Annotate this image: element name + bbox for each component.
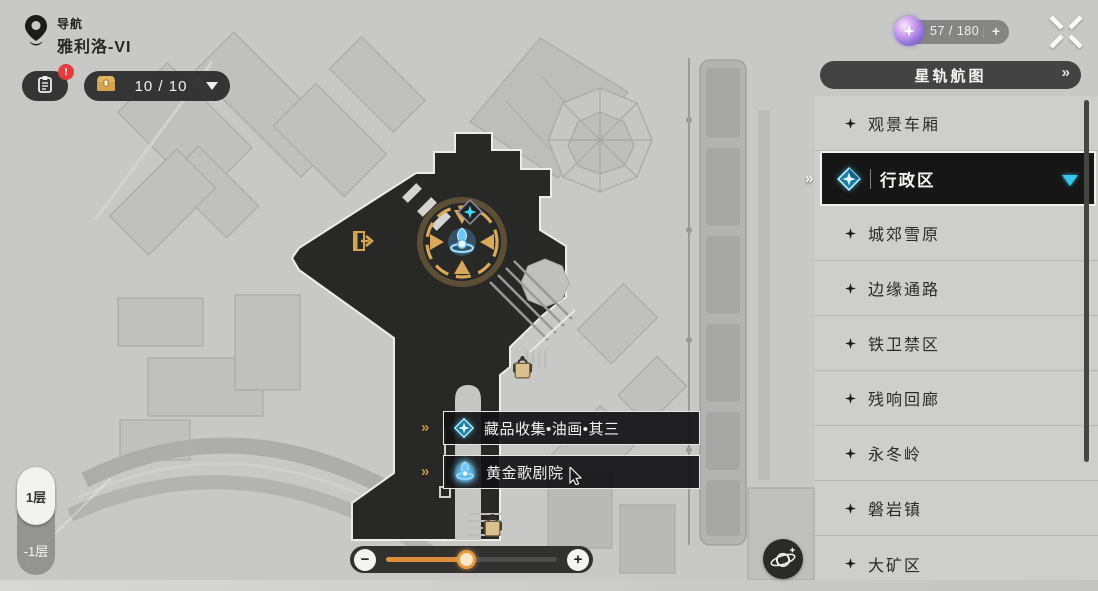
poi-pointer-icon: » <box>421 419 427 436</box>
panel-scrollbar[interactable] <box>1084 100 1089 462</box>
chest-icon <box>96 75 116 97</box>
nav-label: 导航 <box>57 15 131 32</box>
map-anchor-pin-icon[interactable] <box>457 199 483 230</box>
star-bullet-icon <box>845 118 856 129</box>
current-selection-arrow-icon: » <box>805 170 811 187</box>
space-anchor-diamond-icon <box>836 166 862 192</box>
close-button[interactable] <box>1048 14 1084 50</box>
chest-count-text: 10 / 10 <box>124 78 198 95</box>
zoom-track[interactable] <box>386 557 557 562</box>
floor-button-1[interactable]: 1层 <box>17 467 55 525</box>
star-rail-chart-button[interactable]: 星轨航图 » <box>820 61 1081 89</box>
poi-label-text: 黄金歌剧院 <box>486 462 564 483</box>
vendor-bag-icon[interactable] <box>512 355 533 385</box>
star-bullet-icon <box>845 338 856 349</box>
space-anchor-icon <box>453 460 477 484</box>
floor-button-minus1[interactable]: -1层 <box>17 525 55 575</box>
star-rail-chart-label: 星轨航图 <box>914 65 986 86</box>
star-bullet-icon <box>845 448 856 459</box>
chest-counter[interactable]: 10 / 10 <box>84 71 230 101</box>
star-bullet-icon <box>845 283 856 294</box>
game-map-screen: { "header": { "nav_label": "导航", "world_… <box>0 0 1098 580</box>
stamina-value: 57 / 180 <box>930 24 979 38</box>
star-bullet-icon <box>845 558 856 569</box>
sidebar-region-item-0[interactable]: 观景车厢 <box>815 96 1098 151</box>
star-bullet-icon <box>845 503 856 514</box>
mouse-cursor-icon <box>569 467 583 485</box>
collection-diamond-icon <box>453 417 475 439</box>
zoom-in-button[interactable]: + <box>567 549 589 571</box>
region-list-panel: 观景车厢 » 行政区 城郊雪原 边缘通路 铁卫禁区 <box>815 96 1098 580</box>
poi-label-collection[interactable]: 藏品收集•油画•其三 <box>443 411 700 445</box>
poi-pointer-icon: » <box>421 463 427 480</box>
sidebar-region-item-4[interactable]: 铁卫禁区 <box>815 316 1098 371</box>
star-bullet-icon <box>845 393 856 404</box>
universe-view-button[interactable] <box>763 539 803 579</box>
clipboard-icon <box>37 75 53 98</box>
sidebar-region-item-8[interactable]: 大矿区 <box>815 536 1098 591</box>
world-name: 雅利洛-VI <box>57 33 131 57</box>
divider <box>983 26 984 38</box>
star-bullet-icon <box>845 228 856 239</box>
divider <box>870 169 871 189</box>
exit-gate-icon[interactable] <box>352 230 376 257</box>
zoom-knob[interactable] <box>457 550 476 569</box>
vendor-bag-icon[interactable] <box>482 513 503 543</box>
chevron-down-icon[interactable] <box>206 82 218 90</box>
location-pin-icon <box>24 14 48 52</box>
tracker-button[interactable]: ! <box>22 71 68 101</box>
sidebar-region-item-1-selected[interactable]: » 行政区 <box>820 151 1096 206</box>
sidebar-region-item-5[interactable]: 残响回廊 <box>815 371 1098 426</box>
expand-chevron-icon[interactable] <box>1062 175 1078 186</box>
alert-badge: ! <box>58 64 74 80</box>
sidebar-region-item-7[interactable]: 磐岩镇 <box>815 481 1098 536</box>
nav-header: 导航 雅利洛-VI <box>24 14 131 57</box>
poi-label-text: 藏品收集•油画•其三 <box>484 418 620 439</box>
sidebar-region-item-3[interactable]: 边缘通路 <box>815 261 1098 316</box>
floor-switcher: 1层 -1层 <box>17 467 55 575</box>
plaza-pavilion <box>521 259 569 307</box>
zoom-fill <box>386 557 466 562</box>
stamina-counter: 57 / 180 + <box>897 20 1009 44</box>
trailblaze-power-icon <box>894 16 924 46</box>
zoom-slider: − + <box>350 546 593 573</box>
sidebar-region-item-6[interactable]: 永冬岭 <box>815 426 1098 481</box>
add-stamina-button[interactable]: + <box>992 23 1000 39</box>
poi-label-opera-house[interactable]: 黄金歌剧院 <box>443 455 700 489</box>
chevron-right-double-icon: » <box>1062 64 1068 81</box>
sidebar-region-item-2[interactable]: 城郊雪原 <box>815 206 1098 261</box>
zoom-out-button[interactable]: − <box>354 549 376 571</box>
planet-icon <box>767 543 799 575</box>
pavilion-building <box>548 88 652 192</box>
